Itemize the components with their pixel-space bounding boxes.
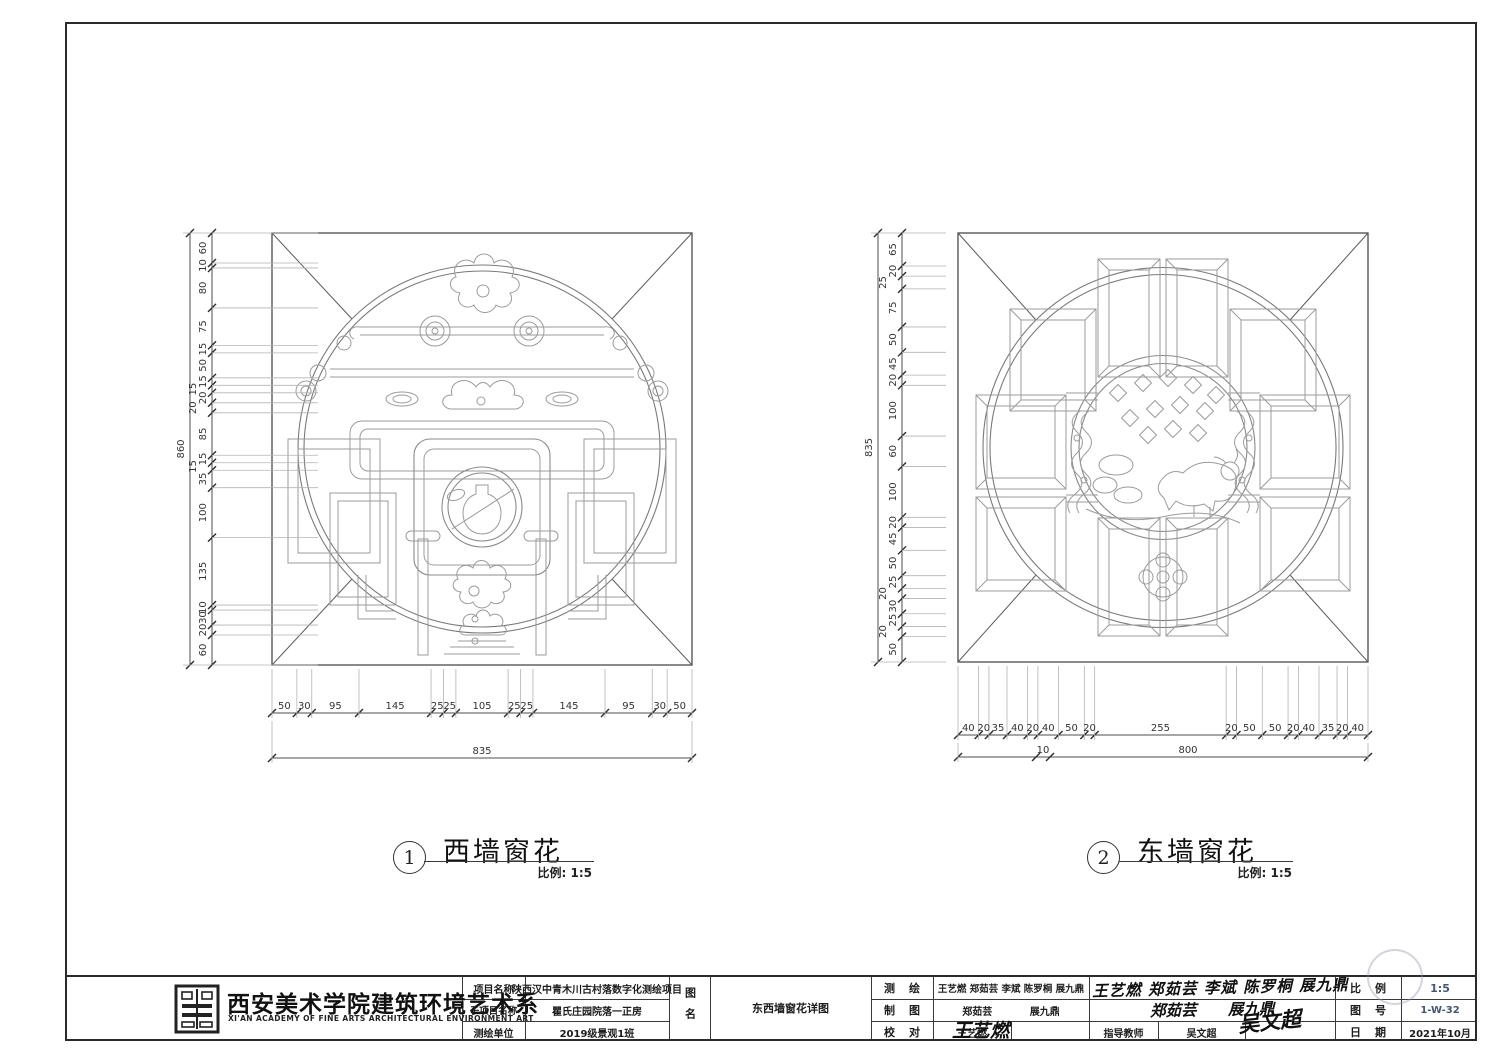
east-window-drawing: 8356520257550452010060100204550252030252… [840,225,1400,780]
svg-text:50: 50 [1269,723,1282,734]
svg-text:25: 25 [878,276,889,289]
svg-text:50: 50 [888,643,899,656]
advisor-value: 吴文超 [1158,1021,1245,1043]
svg-text:50: 50 [888,557,899,570]
svg-text:20: 20 [878,587,889,600]
svg-text:25: 25 [443,701,456,712]
subproject-name-value: 瞿氏庄园院落一正房 [525,999,669,1021]
drawing-sheet: 8606010807515501515202085151535100135103… [0,0,1500,1061]
svg-text:15: 15 [198,343,209,356]
sheet-number-value: 1-W-32 [1401,999,1479,1021]
svg-text:20: 20 [198,624,209,637]
svg-text:50: 50 [278,701,291,712]
checked-by-label: 校对 [871,1021,933,1043]
svg-text:20: 20 [188,401,199,414]
survey-unit-label: 测绘单位 [462,1021,525,1043]
east-window-figure [958,233,1368,662]
sheet-name-label: 图名 [669,977,710,1039]
subproject-name-label: 子项目名称 [462,999,525,1021]
svg-text:800: 800 [1178,745,1197,756]
svg-text:20: 20 [1225,723,1238,734]
west-title-underline [424,861,594,862]
svg-text:20: 20 [1083,723,1096,734]
svg-text:35: 35 [992,723,1005,734]
svg-text:25: 25 [508,701,521,712]
svg-text:15: 15 [198,375,209,388]
detail-number-badge-1: 1 [393,841,426,874]
svg-text:835: 835 [864,438,875,457]
svg-text:15: 15 [198,453,209,466]
svg-text:100: 100 [888,401,899,420]
date-value: 2021年10月 [1401,1021,1479,1043]
svg-text:45: 45 [888,357,899,370]
svg-text:45: 45 [888,533,899,546]
svg-text:30: 30 [653,701,666,712]
academy-logo-icon [173,983,221,1035]
svg-text:20: 20 [1026,723,1039,734]
svg-text:15: 15 [188,460,199,473]
svg-text:105: 105 [472,701,491,712]
svg-text:40: 40 [1011,723,1024,734]
svg-text:80: 80 [198,282,209,295]
svg-text:10: 10 [1037,745,1050,756]
svg-text:65: 65 [888,243,899,256]
svg-text:50: 50 [1065,723,1078,734]
svg-text:25: 25 [520,701,533,712]
survey-unit-value: 2019级景观1班 [525,1021,669,1043]
west-scale-label: 比例: 1:5 [470,864,592,881]
svg-text:35: 35 [198,473,209,486]
svg-text:35: 35 [1322,723,1335,734]
svg-text:60: 60 [888,445,899,458]
watermark-circle [1367,949,1423,1005]
date-label: 日期 [1335,1021,1401,1043]
svg-text:30: 30 [198,611,209,624]
svg-text:60: 60 [198,242,209,255]
svg-text:20: 20 [878,625,889,638]
svg-text:25: 25 [888,576,899,589]
svg-text:860: 860 [176,439,187,458]
svg-text:40: 40 [962,723,975,734]
svg-text:255: 255 [1151,723,1170,734]
svg-text:50: 50 [888,333,899,346]
west-window-figure [272,233,692,665]
center-diamond-grid [1110,370,1225,444]
svg-text:95: 95 [622,701,635,712]
svg-text:40: 40 [1042,723,1055,734]
svg-text:85: 85 [198,428,209,441]
svg-text:25: 25 [431,701,444,712]
west-window-drawing: 8606010807515501515202085151535100135103… [150,225,710,780]
svg-text:50: 50 [198,359,209,372]
svg-text:20: 20 [1336,723,1349,734]
svg-text:95: 95 [329,701,342,712]
svg-text:20: 20 [977,723,990,734]
svg-text:135: 135 [198,562,209,581]
svg-text:30: 30 [298,701,311,712]
svg-text:20: 20 [888,374,899,387]
svg-text:40: 40 [1302,723,1315,734]
svg-text:20: 20 [198,391,209,404]
signature-checker: 王艺燃 [952,1016,1009,1043]
svg-text:20: 20 [1287,723,1300,734]
svg-text:40: 40 [1351,723,1364,734]
detail-number-badge-2: 2 [1087,841,1120,874]
surveyed-by-label: 测绘 [871,977,933,999]
surveyed-by-value: 王艺燃 郑茹芸 李斌 陈罗桐 展九鼎 [933,977,1089,999]
svg-text:20: 20 [888,516,899,529]
svg-text:20: 20 [888,265,899,278]
svg-text:100: 100 [888,482,899,501]
dimension-chains: 8606010807515501515202085151535100135103… [176,229,696,763]
svg-text:60: 60 [198,644,209,657]
svg-text:50: 50 [673,701,686,712]
east-title-underline [1119,861,1293,862]
svg-text:25: 25 [888,614,899,627]
svg-text:835: 835 [472,746,491,757]
svg-text:100: 100 [198,503,209,522]
west-lattice-ornament [288,254,676,655]
svg-text:10: 10 [198,259,209,272]
svg-text:50: 50 [1243,723,1256,734]
advisor-label: 指导教师 [1089,1021,1158,1043]
svg-text:75: 75 [198,320,209,333]
svg-text:145: 145 [559,701,578,712]
svg-text:145: 145 [385,701,404,712]
east-scale-label: 比例: 1:5 [1170,864,1292,881]
svg-text:30: 30 [888,600,899,613]
sheet-name-value: 东西墙窗花详图 [710,977,871,1039]
svg-text:75: 75 [888,302,899,315]
drafted-by-label: 制图 [871,999,933,1021]
project-name-value: 陕西汉中青木川古村落数字化测绘项目 [525,977,669,999]
